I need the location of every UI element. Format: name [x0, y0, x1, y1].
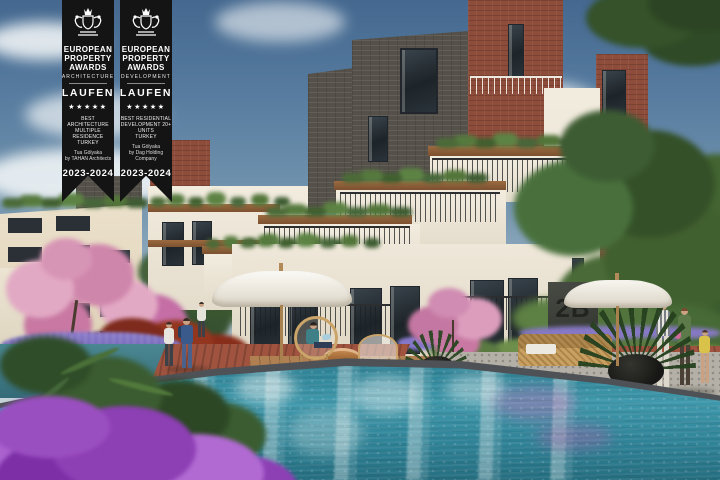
- reading-woman-head: [310, 322, 317, 329]
- umbrella-pole: [616, 306, 619, 366]
- terrace-plants: [436, 138, 458, 148]
- sofa-cushion: [526, 344, 556, 354]
- award-title: BEST RESIDENTIAL DEVELOPMENT 20+ UNITS T…: [120, 116, 172, 140]
- girl-yellow-dress: [699, 336, 710, 353]
- patio-umbrella-right: [564, 280, 672, 308]
- award-category: DEVELOPMENT: [121, 74, 171, 80]
- award-badge-architecture: EUROPEAN PROPERTY AWARDS ARCHITECTURE LA…: [62, 0, 114, 202]
- five-star-rating: ★★★★★: [126, 103, 165, 111]
- terrace-plants: [206, 239, 220, 249]
- tower-window: [400, 48, 438, 114]
- large-tree-right: [560, 110, 655, 182]
- pink-flowering-tree: [428, 288, 470, 318]
- man-legs: [182, 344, 192, 368]
- award-title: BEST ARCHITECTURE MULTIPLE RESIDENCE TUR…: [62, 116, 114, 146]
- terrace-plants: [240, 238, 256, 248]
- divider: [69, 83, 107, 84]
- award-winner: Tua Gölyaka by Dag Holding Company: [120, 144, 172, 162]
- reading-woman-legs: [314, 342, 332, 348]
- terrace-plants: [150, 197, 166, 207]
- mother-head: [681, 308, 688, 315]
- divider: [127, 83, 165, 84]
- sponsor-logo: LAUFEN: [62, 87, 114, 99]
- umbrella-pole: [280, 305, 283, 373]
- tower-window: [368, 116, 388, 162]
- heraldic-crest-icon: [129, 5, 163, 43]
- couple-walking: [164, 300, 214, 374]
- award-badge-development: EUROPEAN PROPERTY AWARDS DEVELOPMENT LAU…: [120, 0, 172, 202]
- terrace-plants: [342, 173, 364, 183]
- award-organization: EUROPEAN PROPERTY AWARDS: [64, 45, 113, 72]
- treetop-corner-right: [648, 0, 720, 32]
- cloud: [215, 2, 345, 42]
- architectural-render-scene: 2B: [0, 0, 720, 480]
- red-brick-window: [508, 24, 524, 78]
- woman-torso: [164, 328, 174, 344]
- second-man-torso: [197, 307, 206, 321]
- man-head: [183, 318, 190, 325]
- heraldic-crest-icon: [71, 5, 105, 43]
- pink-blossom-tree: [40, 238, 92, 280]
- five-star-rating: ★★★★★: [68, 103, 107, 111]
- terrace-plants: [266, 207, 288, 217]
- award-organization: EUROPEAN PROPERTY AWARDS: [122, 45, 171, 72]
- sponsor-logo: LAUFEN: [120, 87, 172, 99]
- award-winner: Tua Gölyaka by TAHAN Architects: [65, 150, 111, 162]
- woman-legs: [165, 344, 173, 366]
- award-category: ARCHITECTURE: [62, 74, 114, 80]
- girl-legs: [701, 353, 709, 383]
- terrace-plants: [2, 198, 24, 208]
- second-man-legs: [198, 321, 205, 337]
- man-torso: [181, 325, 193, 344]
- mid-building-wood-fascia: [148, 204, 280, 212]
